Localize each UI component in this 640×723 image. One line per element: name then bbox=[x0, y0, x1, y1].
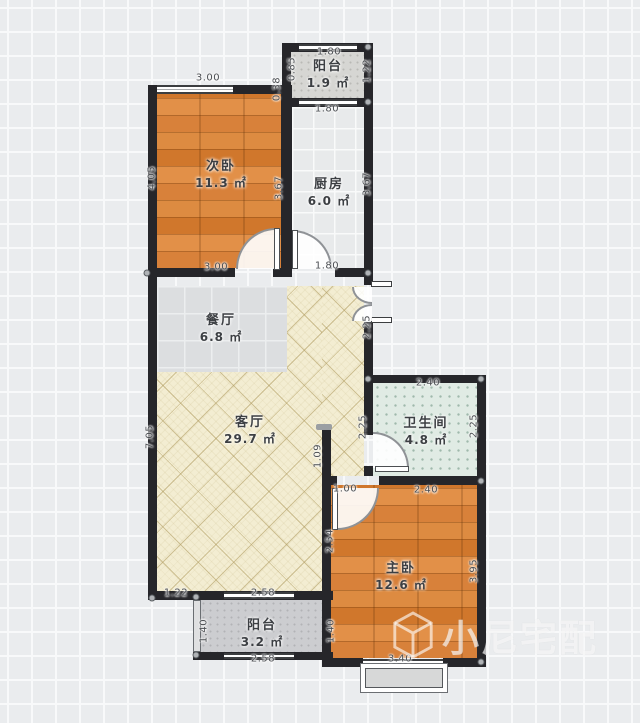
room-label-balcony-bottom: 阳台 3.2 ㎡ bbox=[241, 614, 283, 650]
room-name: 客厅 bbox=[224, 411, 276, 430]
dim-label: 1.09 bbox=[313, 444, 324, 468]
entry-jamb-bottom bbox=[371, 317, 392, 323]
dim-label: 4.05 bbox=[147, 166, 158, 190]
wall-node bbox=[365, 99, 372, 106]
wall-node bbox=[365, 376, 372, 383]
room-label-master: 主卧 12.6 ㎡ bbox=[375, 557, 427, 593]
dim-label: 2.25 bbox=[358, 415, 369, 439]
room-label-bedroom2: 次卧 11.3 ㎡ bbox=[195, 155, 247, 191]
cube-logo-icon bbox=[390, 610, 436, 660]
wall-node bbox=[478, 478, 485, 485]
room-area: 6.0 ㎡ bbox=[308, 192, 350, 209]
room-area: 11.3 ㎡ bbox=[195, 174, 247, 191]
room-name: 餐厅 bbox=[200, 309, 242, 328]
room-area: 29.7 ㎡ bbox=[224, 430, 276, 447]
dim-label: 2.25 bbox=[362, 315, 373, 339]
dim-label: 3.95 bbox=[469, 559, 480, 583]
bay-window-sill bbox=[365, 668, 443, 688]
room-label-living: 客厅 29.7 ㎡ bbox=[224, 411, 276, 447]
wall-bathroom-left-b bbox=[364, 466, 373, 476]
dim-label: 2.40 bbox=[414, 485, 438, 496]
kitchen-door-leaf bbox=[292, 230, 298, 269]
sqm-icon: ㎡ bbox=[270, 635, 283, 649]
window-bedroom2-top bbox=[157, 85, 233, 94]
room-name: 阳台 bbox=[307, 55, 349, 74]
dim-label: 3.00 bbox=[196, 73, 220, 84]
bay-window bbox=[360, 663, 448, 693]
room-area: 3.2 ㎡ bbox=[241, 633, 283, 650]
dim-label: 1.40 bbox=[326, 619, 337, 643]
room-name: 卫生间 bbox=[403, 412, 448, 431]
room-name: 厨房 bbox=[308, 173, 350, 192]
dim-label: 0.85 bbox=[287, 57, 298, 81]
dim-label: 2.58 bbox=[251, 654, 275, 665]
entry-jamb-top bbox=[371, 281, 392, 287]
room-area: 6.8 ㎡ bbox=[200, 328, 242, 345]
room-label-kitchen: 厨房 6.0 ㎡ bbox=[308, 173, 350, 209]
dim-label: 1.80 bbox=[315, 261, 339, 272]
dim-label: 7.05 bbox=[145, 425, 156, 449]
dim-label: 3.67 bbox=[274, 176, 285, 200]
room-label-balcony-top: 阳台 1.9 ㎡ bbox=[307, 55, 349, 91]
sqm-icon: ㎡ bbox=[434, 433, 447, 447]
dim-label: 1.00 bbox=[333, 484, 357, 495]
bathroom-door-leaf bbox=[375, 466, 409, 472]
room-area: 12.6 ㎡ bbox=[375, 576, 427, 593]
dim-label: 2.40 bbox=[416, 378, 440, 389]
sqm-icon: ㎡ bbox=[229, 330, 242, 344]
room-name: 次卧 bbox=[195, 155, 247, 174]
sqm-icon: ㎡ bbox=[263, 432, 276, 446]
dim-label: 3.67 bbox=[362, 172, 373, 196]
dim-label: 2.54 bbox=[325, 529, 336, 553]
dim-label: 2.25 bbox=[469, 414, 480, 438]
dim-label: 1.80 bbox=[315, 104, 339, 115]
wall-node bbox=[144, 270, 151, 277]
sqm-icon: ㎡ bbox=[336, 76, 349, 90]
room-name: 主卧 bbox=[375, 557, 427, 576]
sqm-icon: ㎡ bbox=[337, 194, 350, 208]
room-area: 4.8 ㎡ bbox=[403, 431, 448, 448]
wall-node bbox=[149, 595, 156, 602]
floor-plan: 3.00 1.80 0.85 1.22 0.38 1.80 4.05 3.67 … bbox=[0, 0, 640, 723]
dim-label: 3.00 bbox=[204, 262, 228, 273]
half-wall-cap bbox=[316, 424, 332, 430]
dim-label: 1.22 bbox=[362, 59, 373, 83]
room-area: 1.9 ㎡ bbox=[307, 74, 349, 91]
wall-node bbox=[365, 270, 372, 277]
wall-node bbox=[365, 44, 372, 51]
wall-node bbox=[193, 652, 200, 659]
room-label-bathroom: 卫生间 4.8 ㎡ bbox=[403, 412, 448, 448]
room-name: 阳台 bbox=[241, 614, 283, 633]
dim-label: 2.58 bbox=[251, 588, 275, 599]
sqm-icon: ㎡ bbox=[414, 578, 427, 592]
room-label-dining: 餐厅 6.8 ㎡ bbox=[200, 309, 242, 345]
sqm-icon: ㎡ bbox=[234, 176, 247, 190]
dim-label: 1.22 bbox=[164, 588, 188, 599]
dim-label: 0.38 bbox=[272, 77, 283, 101]
watermark-text: 小尼宅配 bbox=[442, 608, 598, 662]
dim-label: 1.40 bbox=[199, 619, 210, 643]
wall-node bbox=[193, 594, 200, 601]
wall-node bbox=[478, 376, 485, 383]
bedroom2-door-leaf bbox=[274, 228, 280, 270]
watermark: 小尼宅配 bbox=[390, 608, 598, 662]
